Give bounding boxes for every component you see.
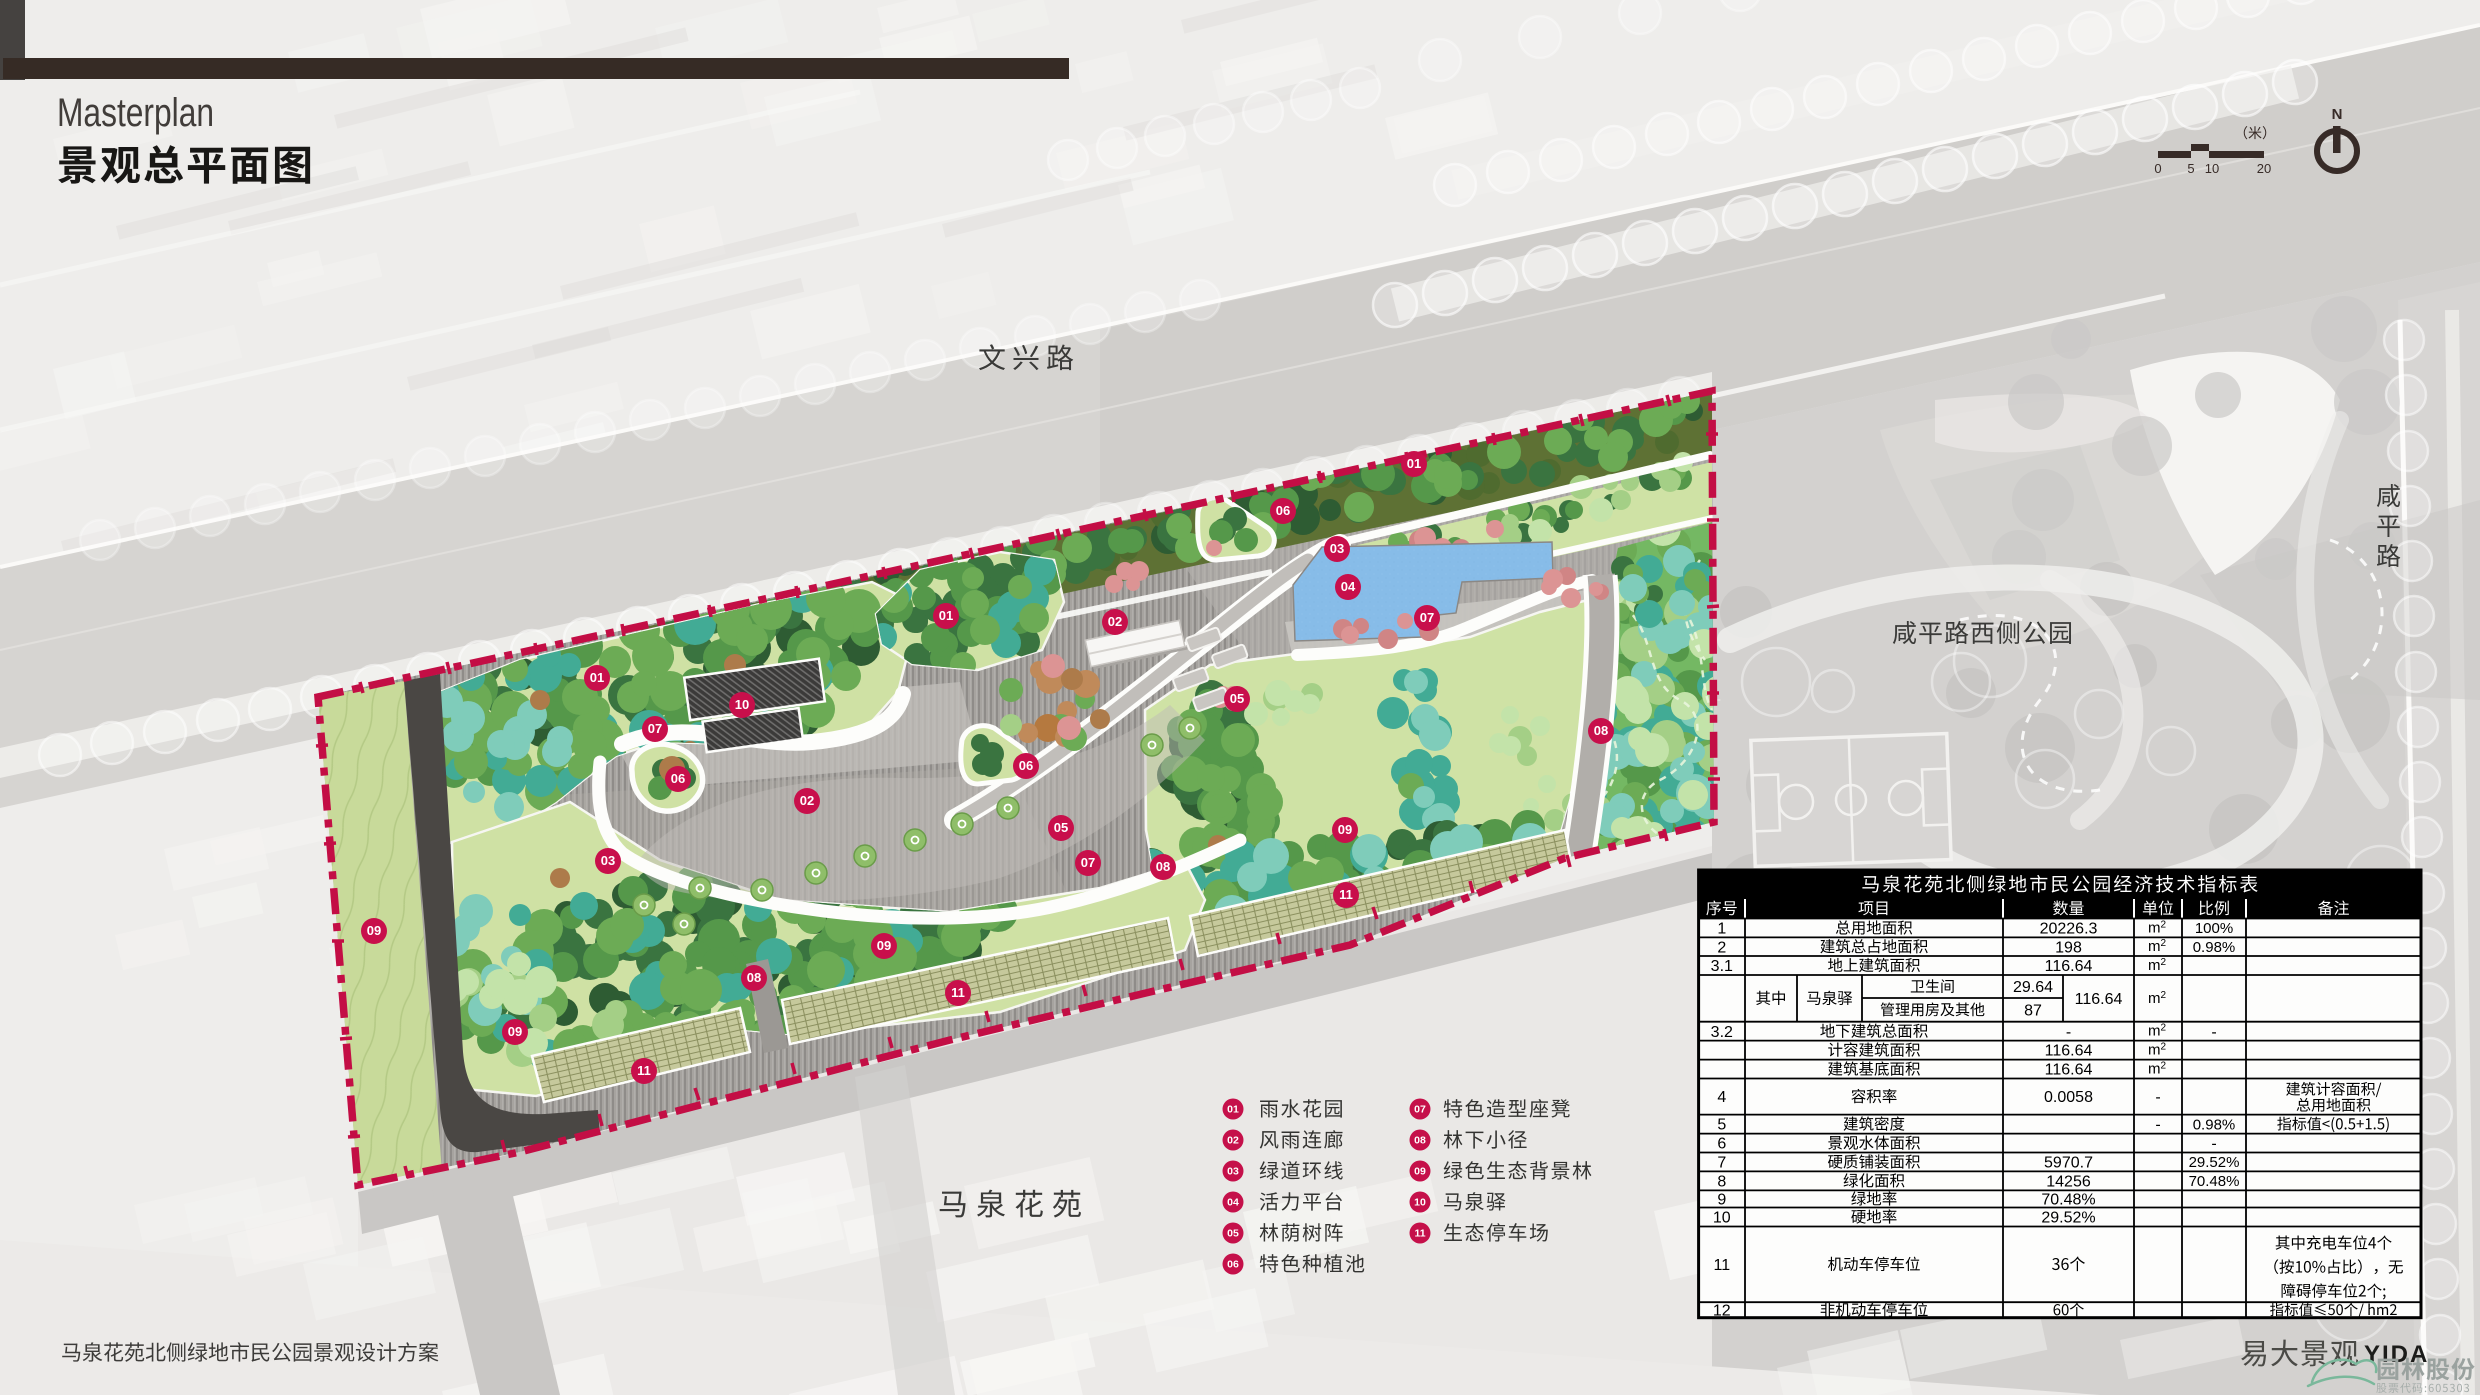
svg-text:116.64: 116.64 [2045,958,2093,975]
svg-text:11: 11 [1414,1228,1425,1240]
svg-text:08: 08 [1414,1135,1426,1147]
svg-text:5: 5 [2187,161,2194,176]
svg-text:-: - [2211,1136,2216,1153]
svg-text:0: 0 [2154,161,2161,176]
svg-text:N: N [2332,106,2343,123]
svg-text:198: 198 [2055,939,2082,956]
svg-text:01: 01 [1227,1104,1239,1116]
svg-text:6: 6 [1717,1136,1726,1153]
svg-text:0.98%: 0.98% [2193,939,2236,956]
svg-text:3.2: 3.2 [1711,1024,1733,1041]
svg-text:02: 02 [1108,614,1122,629]
svg-text:03: 03 [1227,1166,1239,1178]
svg-text:9: 9 [1717,1192,1726,1209]
svg-text:116.64: 116.64 [2075,991,2123,1008]
svg-text:07: 07 [1420,610,1434,625]
svg-text:-: - [2155,1089,2160,1106]
svg-text:70.48%: 70.48% [2041,1192,2095,1209]
svg-text:5: 5 [1717,1117,1726,1134]
svg-text:-: - [2155,1117,2160,1134]
svg-text:06: 06 [1019,758,1033,773]
svg-text:04: 04 [1227,1197,1239,1209]
svg-text:10: 10 [1414,1197,1426,1209]
svg-text:14256: 14256 [2046,1174,2091,1191]
svg-text:87: 87 [2024,1003,2042,1020]
svg-text:2: 2 [1717,939,1726,956]
svg-text:08: 08 [1156,859,1170,874]
svg-text:09: 09 [508,1024,522,1039]
svg-text:05: 05 [1230,691,1244,706]
svg-text:08: 08 [747,970,761,985]
svg-text:5970.7: 5970.7 [2044,1155,2093,1172]
svg-text:4: 4 [1717,1089,1726,1106]
svg-text:03: 03 [601,853,615,868]
svg-text:0.98%: 0.98% [2193,1116,2236,1133]
svg-text:11: 11 [1339,887,1353,902]
svg-text:116.64: 116.64 [2045,1043,2093,1060]
svg-text:05: 05 [1227,1228,1239,1240]
svg-text:01: 01 [939,608,953,623]
svg-text:07: 07 [1081,855,1095,870]
svg-text:8: 8 [1717,1174,1726,1191]
svg-text:01: 01 [1407,456,1421,471]
svg-text:04: 04 [1341,579,1356,594]
svg-text:116.64: 116.64 [2045,1062,2093,1079]
svg-text:11: 11 [637,1063,651,1078]
svg-text:11: 11 [951,985,965,1000]
svg-text:70.48%: 70.48% [2189,1173,2240,1190]
svg-text:20226.3: 20226.3 [2040,921,2098,938]
svg-text:06: 06 [1276,503,1290,518]
svg-text:10: 10 [735,697,749,712]
svg-text:09: 09 [367,923,381,938]
svg-text:29.52%: 29.52% [2189,1154,2240,1171]
svg-text:01: 01 [590,670,604,685]
svg-text:09: 09 [1338,822,1352,837]
svg-text:29.64: 29.64 [2013,979,2053,996]
svg-text:02: 02 [1227,1135,1239,1147]
svg-text:-: - [2066,1024,2071,1041]
svg-text:05: 05 [1054,820,1068,835]
svg-text:06: 06 [671,771,685,786]
svg-text:06: 06 [1227,1259,1239,1271]
svg-text:-: - [2211,1024,2216,1041]
svg-text:20: 20 [2257,161,2271,176]
svg-text:07: 07 [1414,1104,1426,1116]
svg-text:10: 10 [1713,1210,1731,1227]
svg-text:1: 1 [1717,921,1726,938]
svg-text:12: 12 [1713,1303,1731,1320]
svg-text:08: 08 [1594,723,1608,738]
svg-text:02: 02 [800,793,814,808]
svg-text:29.52%: 29.52% [2041,1210,2095,1227]
svg-text:10: 10 [2205,161,2219,176]
svg-text:100%: 100% [2195,920,2233,937]
svg-text:7: 7 [1717,1155,1726,1172]
svg-text:09: 09 [877,938,891,953]
svg-text:07: 07 [648,721,662,736]
svg-text:Masterplan: Masterplan [57,91,214,135]
svg-text:03: 03 [1330,541,1344,556]
svg-text:3.1: 3.1 [1711,958,1733,975]
svg-text:11: 11 [1713,1257,1730,1274]
svg-text:09: 09 [1414,1166,1426,1178]
svg-text:0.0058: 0.0058 [2044,1089,2093,1106]
